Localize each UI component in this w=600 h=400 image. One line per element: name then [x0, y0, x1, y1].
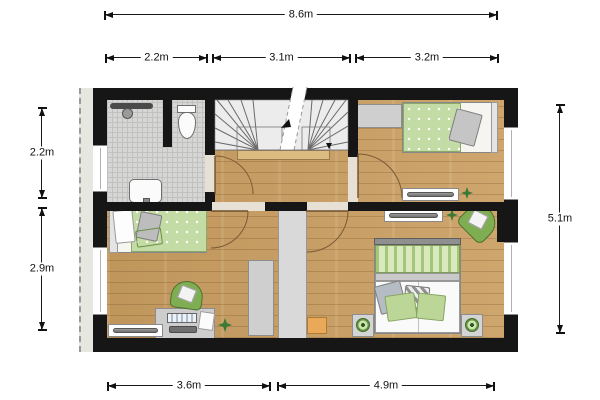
- partition-bedrooms: [278, 208, 307, 340]
- dim-label: 3.6m: [173, 380, 205, 393]
- door-bedroom-bottom-right: [306, 210, 349, 253]
- dim-tick: [556, 332, 565, 334]
- pillow: [384, 292, 417, 322]
- dim-tick: [269, 382, 271, 391]
- dim-tick: [38, 207, 47, 209]
- dim-label: 2.9m: [26, 263, 58, 276]
- dim-label: 2.2m: [26, 147, 58, 160]
- keyboard: [167, 313, 197, 323]
- dim-bottom-right: 4.9m: [278, 385, 494, 386]
- pillow: [416, 293, 447, 322]
- dim-bottom-left: 3.6m: [108, 385, 270, 386]
- shower-head-icon: [122, 108, 133, 119]
- lamp-icon: [356, 318, 370, 332]
- dim-tick: [493, 382, 495, 391]
- door-bedroom-top-right: [357, 154, 403, 200]
- dim-tick: [38, 329, 47, 331]
- bed-duvet-striped: [375, 245, 460, 273]
- dim-tick: [38, 197, 47, 199]
- wall-middle-segment-right: [348, 202, 504, 211]
- papers: [198, 311, 215, 331]
- dim-tick: [105, 54, 107, 63]
- dim-tick: [556, 104, 565, 106]
- door-bathroom: [214, 156, 254, 196]
- window-bathroom-left: [93, 145, 107, 192]
- staircase: [215, 100, 348, 150]
- pillow: [112, 209, 135, 244]
- dim-tick: [497, 54, 499, 63]
- dim-tick: [38, 107, 47, 109]
- bed-headboard: [491, 102, 498, 153]
- wall-bathroom-east: [205, 100, 215, 155]
- dim-label: 3.2m: [411, 52, 443, 65]
- roof-overhang-strip: [79, 88, 94, 352]
- floor-plan-canvas: 8.6m 2.2m 3.1m 3.2m 2.2m 2.9m 5.1m 3.6m …: [0, 0, 600, 400]
- dim-label: 3.1m: [265, 52, 297, 65]
- wall-right-pier: [497, 202, 518, 242]
- dim-label: 2.2m: [140, 52, 172, 65]
- dim-label: 5.1m: [544, 213, 576, 226]
- dim-tick: [206, 54, 208, 63]
- shower-rail: [110, 103, 153, 109]
- radiator: [108, 324, 163, 337]
- dim-bedroom-width: 3.2m: [356, 57, 498, 58]
- dim-left-bottom: 2.9m: [41, 208, 42, 330]
- wall-stairwell-east: [348, 100, 358, 157]
- lamp-icon: [465, 318, 479, 332]
- wall-middle-segment-center: [265, 202, 307, 211]
- pillow: [135, 227, 163, 247]
- window-bedroom-top-right: [504, 127, 518, 200]
- dim-overall-depth: 5.1m: [559, 105, 560, 333]
- dim-tick: [212, 54, 214, 63]
- stool: [307, 317, 327, 334]
- window-bedroom-bottom-left: [93, 247, 107, 315]
- dim-tick: [107, 382, 109, 391]
- dim-tick: [349, 54, 351, 63]
- dim-tick: [496, 11, 498, 20]
- dim-label: 8.6m: [285, 9, 317, 22]
- dim-label: 4.9m: [370, 380, 402, 393]
- bed-blanket-fold: [375, 273, 460, 281]
- dim-tick: [104, 11, 106, 20]
- dim-bathroom-width: 2.2m: [106, 57, 207, 58]
- dim-tick: [277, 382, 279, 391]
- wall-bathroom-divider-stub: [163, 100, 172, 147]
- dim-stairs-width: 3.1m: [213, 57, 350, 58]
- dim-tick: [355, 54, 357, 63]
- bed-footboard: [374, 238, 461, 245]
- dim-left-top: 2.2m: [41, 108, 42, 198]
- wall-middle-segment-left: [107, 202, 212, 211]
- window-bedroom-bottom-right: [504, 242, 518, 315]
- wardrobe: [248, 260, 274, 336]
- door-bedroom-bottom-left: [210, 210, 250, 250]
- dim-overall-width: 8.6m: [105, 14, 497, 15]
- radiator: [402, 188, 459, 201]
- wall-bottom: [93, 338, 518, 352]
- wardrobe: [356, 104, 402, 128]
- monitor-bar: [169, 326, 197, 333]
